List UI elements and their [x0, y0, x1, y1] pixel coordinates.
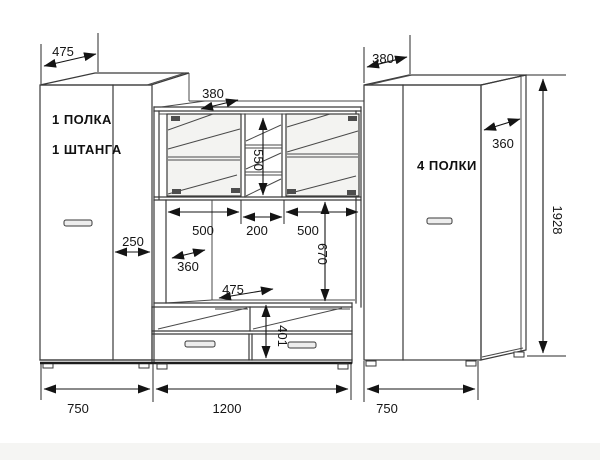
dim-left-depth-text: 475: [52, 44, 74, 59]
dim-glass-right-text: 500: [297, 223, 319, 238]
dim-glass-left-text: 500: [192, 223, 214, 238]
dim-glass-mid-text: 200: [246, 223, 268, 238]
right-foot: [366, 361, 376, 366]
drawer-handle: [185, 341, 215, 347]
dim-glass-widths: 500 200 500: [168, 200, 358, 238]
center-foot: [338, 364, 348, 369]
dim-right-depth-text: 380: [372, 51, 394, 66]
dim-left-side: 250: [115, 234, 150, 252]
dim-niche-height: 670: [315, 202, 330, 301]
drawer-handle: [288, 342, 316, 348]
glass-door-left: [167, 114, 241, 196]
hinge-icon: [171, 116, 180, 121]
dim-niche-depth: 360: [172, 250, 205, 274]
dim-niche-height-text: 670: [315, 243, 330, 265]
center-foot: [157, 364, 167, 369]
right-door-handle: [427, 218, 452, 224]
hinge-icon: [231, 188, 240, 193]
dim-hutch-depth-text: 380: [202, 86, 224, 101]
dim-bottom-widths: 750 1200 750: [41, 361, 478, 416]
dim-left-depth: 475: [41, 33, 98, 84]
glass-door-right: [286, 114, 359, 196]
hinge-icon: [172, 189, 181, 194]
hinge-icon: [287, 189, 296, 194]
dim-width-left-text: 750: [67, 401, 89, 416]
right-foot: [514, 352, 524, 357]
label-left-shelf: 1 ПОЛКА: [52, 112, 112, 127]
hinge-icon: [347, 190, 356, 195]
dim-bench-depth: 475: [219, 282, 273, 298]
dim-right-side-text: 360: [492, 136, 514, 151]
dim-width-right-text: 750: [376, 401, 398, 416]
right-foot: [466, 361, 476, 366]
dim-glass-height-text: 550: [251, 149, 266, 171]
dim-niche-depth-text: 360: [177, 259, 199, 274]
dim-bench-depth-text: 475: [222, 282, 244, 297]
dim-width-center-text: 1200: [213, 401, 242, 416]
dim-drawer-height-text: 401: [275, 325, 290, 347]
drawer-left: [185, 334, 249, 360]
drawing-canvas: 1 ПОЛКА 1 ШТАНГА 475 250: [0, 0, 600, 460]
dim-hutch-depth: 380: [201, 86, 238, 109]
label-left-rod: 1 ШТАНГА: [52, 142, 122, 157]
dim-right-side: 360: [484, 119, 520, 151]
right-wardrobe-side: [481, 75, 526, 360]
lower-cabinet: [40, 303, 352, 369]
dim-total-height: 1928: [526, 75, 566, 356]
floor-shadow: [0, 443, 600, 460]
hinge-icon: [348, 116, 357, 121]
right-wardrobe: 4 ПОЛКИ: [364, 75, 526, 366]
furniture-drawing: 1 ПОЛКА 1 ШТАНГА 475 250: [0, 0, 600, 460]
dim-left-side-text: 250: [122, 234, 144, 249]
dim-total-height-text: 1928: [550, 206, 565, 235]
left-door-handle: [64, 220, 92, 226]
label-right-shelves: 4 ПОЛКИ: [417, 158, 477, 173]
dim-glass-height: 550: [251, 118, 266, 195]
